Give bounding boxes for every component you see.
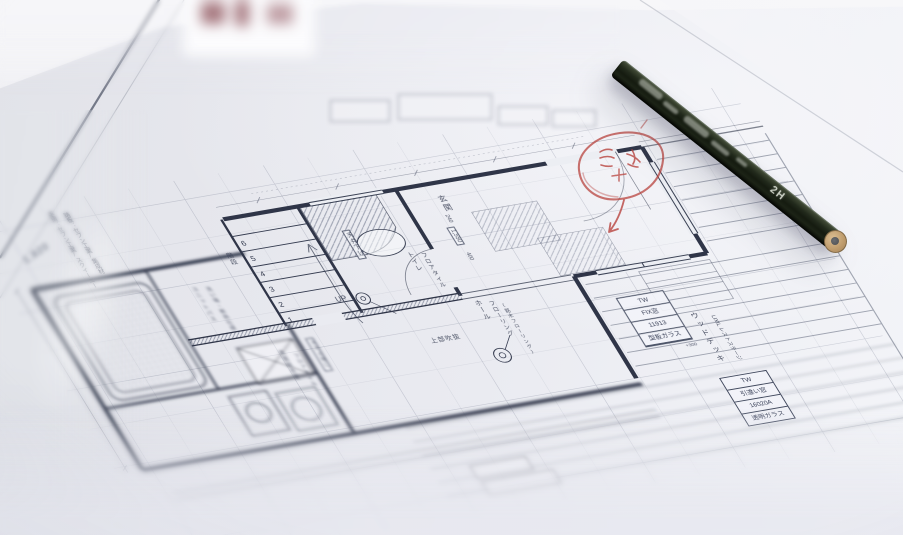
blurred-title-box	[398, 94, 492, 120]
red-arrow	[609, 200, 624, 232]
blurred-title-box	[498, 106, 548, 125]
blurred-title-box	[552, 110, 596, 127]
blurred-title-box	[330, 100, 390, 122]
pencil-end-cap	[824, 230, 847, 253]
pencil-graphite-core	[831, 237, 839, 245]
photo-of-blueprint: 6 5 4 3 2 1	[0, 0, 903, 535]
